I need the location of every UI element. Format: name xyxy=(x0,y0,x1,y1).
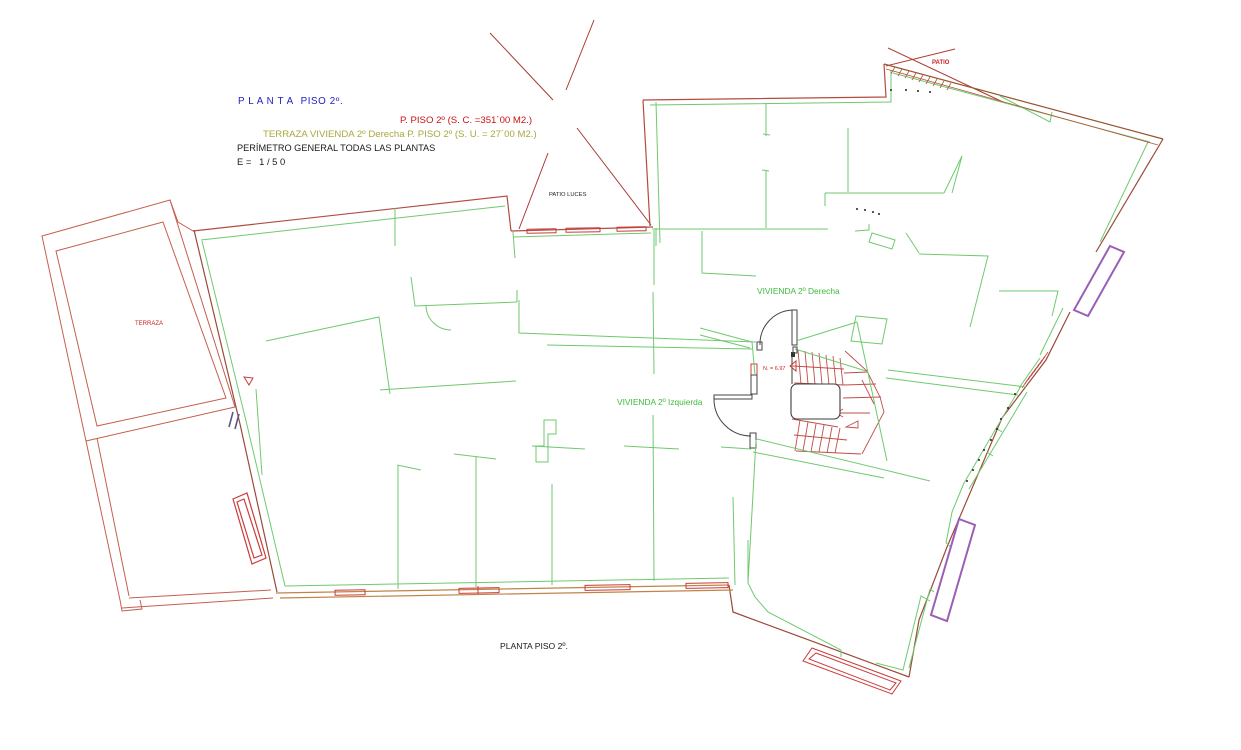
svg-text:PLANTA PISO 2º.: PLANTA PISO 2º. xyxy=(500,641,568,651)
svg-text:PATIO LUCES: PATIO LUCES xyxy=(549,192,587,198)
svg-text:TERRAZA VIVIENDA 2º Derecha P: TERRAZA VIVIENDA 2º Derecha P. PISO 2º (… xyxy=(263,129,537,140)
svg-text:PERÍMETRO GENERAL TODAS LAS P: PERÍMETRO GENERAL TODAS LAS PLANTAS xyxy=(237,143,435,153)
svg-text:TERRAZA: TERRAZA xyxy=(135,321,163,327)
svg-text:PATIO: PATIO xyxy=(932,60,950,66)
svg-text:P L A N T A PISO 2º.: P L A N T A PISO 2º. xyxy=(238,96,343,107)
svg-text:P. PISO 2º (S. C. =351´00 M2.): P. PISO 2º (S. C. =351´00 M2.) xyxy=(400,115,532,126)
svg-text:N. = 6.97: N. = 6.97 xyxy=(763,366,785,372)
svg-text:E = 1 / 5 0: E = 1 / 5 0 xyxy=(237,156,285,167)
svg-text:VIVIENDA 2º Izquierda: VIVIENDA 2º Izquierda xyxy=(617,397,703,407)
svg-text:VIVIENDA 2º Derecha: VIVIENDA 2º Derecha xyxy=(757,286,840,296)
